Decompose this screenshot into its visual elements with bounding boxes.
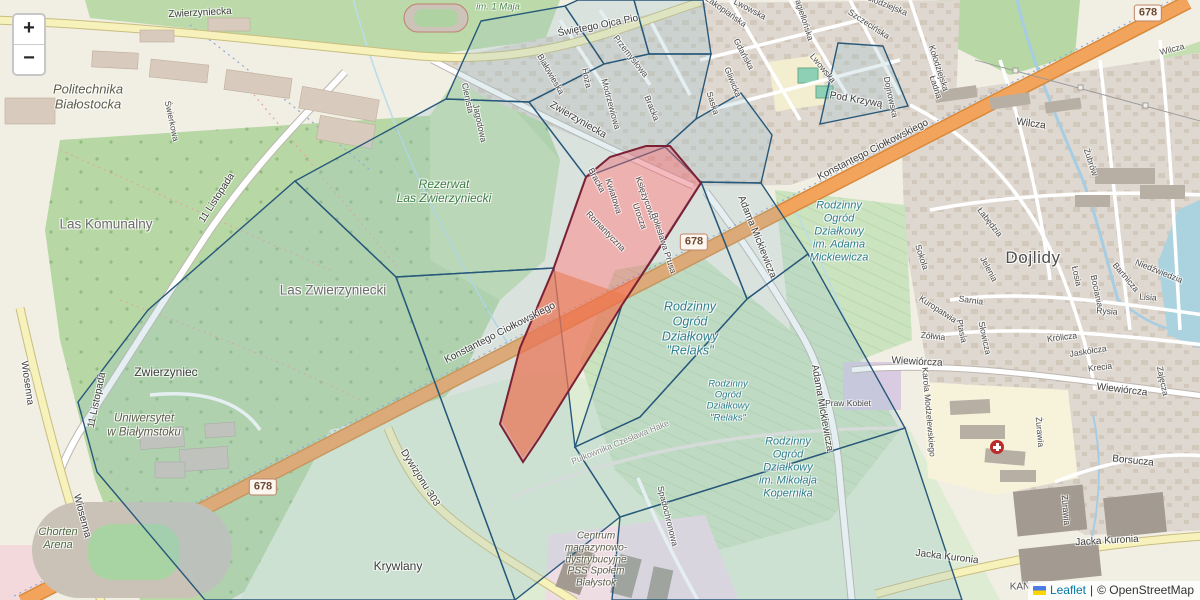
osm-attribution[interactable]: © OpenStreetMap xyxy=(1097,583,1194,597)
zoom-control: + − xyxy=(12,13,46,76)
zoom-in-button[interactable]: + xyxy=(14,15,44,44)
map-canvas[interactable]: ZwierzynieckaŚwiętego Ojca PioZwierzynie… xyxy=(0,0,1200,600)
attribution-separator: | xyxy=(1090,583,1093,597)
leaflet-link[interactable]: Leaflet xyxy=(1050,583,1086,597)
ukraine-flag-icon xyxy=(1033,586,1046,595)
base-map xyxy=(0,0,1200,600)
zoom-out-button[interactable]: − xyxy=(14,44,44,74)
attribution-bar: Leaflet | © OpenStreetMap xyxy=(1028,581,1200,600)
stadium-north xyxy=(404,4,468,32)
